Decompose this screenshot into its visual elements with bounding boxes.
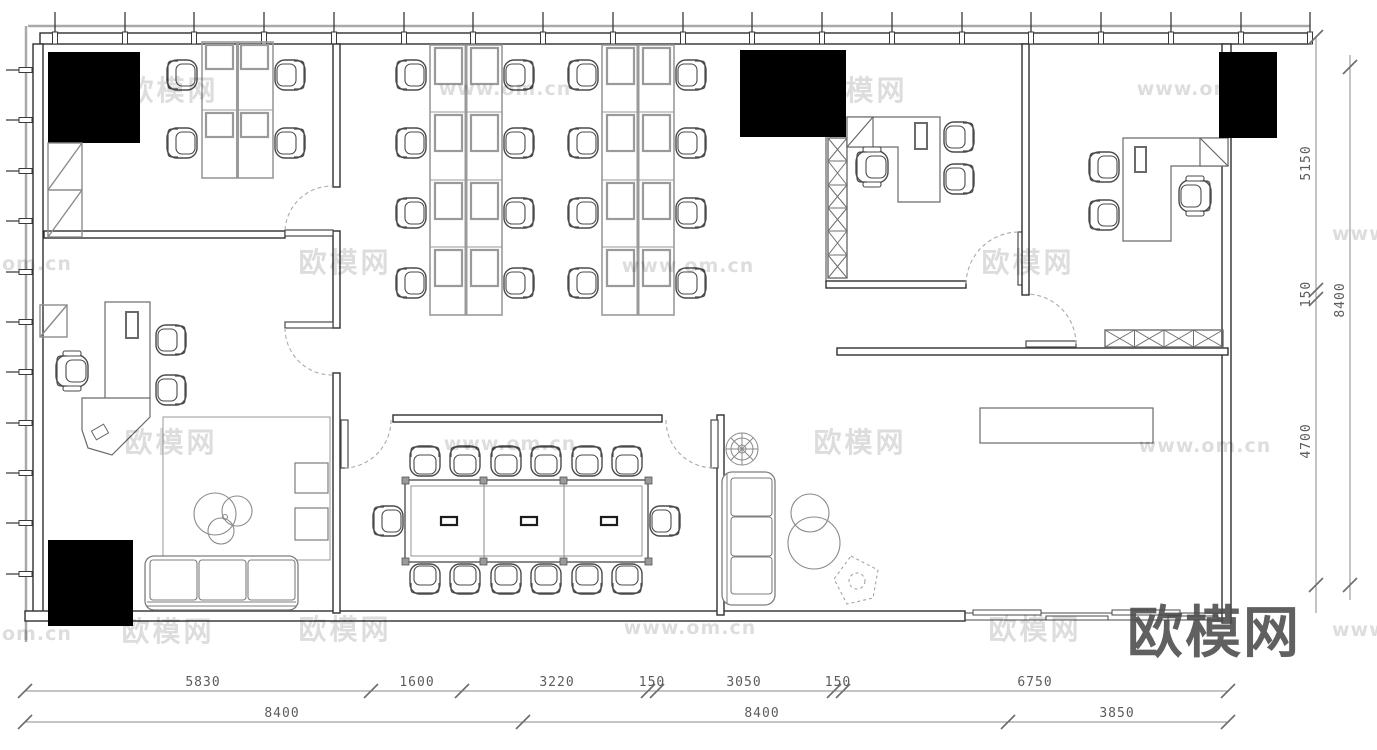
office2-door-leaf <box>285 322 333 328</box>
chair <box>568 268 598 298</box>
chair <box>373 506 403 536</box>
lobby-counter-wall <box>837 348 1228 355</box>
watermark-brand: 欧模网 <box>813 426 906 459</box>
chair <box>167 128 197 158</box>
chair <box>396 128 426 158</box>
chair <box>676 198 706 228</box>
watermark-brand: 欧模网 <box>298 613 391 646</box>
floor-plan-canvas: 5830 1600 3220 150 3050 150 6750 8400 84… <box>0 0 1377 750</box>
office3-bottom-wall <box>826 281 966 288</box>
coffee-table-plant <box>194 493 252 544</box>
dim-label: 3050 <box>726 675 761 690</box>
office3-tall-cabinet <box>828 138 847 278</box>
chair <box>504 198 534 228</box>
monitor-icon <box>241 45 268 69</box>
watermark-brand: 欧模网 <box>124 426 217 459</box>
office-bottom-left <box>40 302 340 626</box>
conference-table <box>402 477 652 565</box>
guest-chair <box>1089 200 1119 230</box>
chair <box>612 564 642 594</box>
monitor-icon <box>206 45 233 69</box>
office1-cabinet <box>48 143 82 237</box>
dim-label: 8400 <box>744 706 779 721</box>
watermark-site-partial: om.cn <box>2 253 72 275</box>
chair <box>396 268 426 298</box>
lobby-sofa <box>722 472 775 605</box>
chair <box>504 268 534 298</box>
watermark-site: www.om.cn <box>1139 435 1272 457</box>
guest-chair <box>156 325 186 355</box>
chair <box>676 60 706 90</box>
chair <box>572 446 602 476</box>
conference-top-wall <box>393 415 662 422</box>
chair <box>568 198 598 228</box>
decor-plant-dashed <box>834 556 878 604</box>
round-table-large <box>788 517 840 569</box>
guest-chair <box>944 164 974 194</box>
dim-label: 3220 <box>539 675 574 690</box>
chair <box>676 128 706 158</box>
monitor-icon <box>471 115 498 151</box>
dim-label: 150 <box>639 675 665 690</box>
guest-chair <box>156 375 186 405</box>
watermark-site: www.om.cn <box>444 433 577 455</box>
dim-label: 150 <box>825 675 851 690</box>
office1-workstation-cluster <box>202 42 273 178</box>
chair <box>410 446 440 476</box>
site-logo: 欧模网 <box>1127 601 1301 666</box>
watermark-brand: 欧模网 <box>814 74 907 107</box>
chair <box>396 198 426 228</box>
office1-right-wall-upper <box>333 44 340 187</box>
executive-chair <box>856 147 888 187</box>
office4-door-arc <box>1026 294 1076 344</box>
chair <box>491 564 521 594</box>
watermark-site: www.om.cn <box>439 78 572 100</box>
watermark-site-partial: www.o <box>1332 619 1377 641</box>
dimension-bottom: 5830 1600 3220 150 3050 150 6750 8400 84… <box>18 675 1235 729</box>
floor-plan-drawing: 5830 1600 3220 150 3050 150 6750 8400 84… <box>0 0 1377 750</box>
dim-label: 6750 <box>1017 675 1052 690</box>
conference-left-door-arc <box>345 420 391 468</box>
chair <box>568 128 598 158</box>
office2-sofa <box>145 556 298 610</box>
redaction-box-4 <box>48 540 133 626</box>
monitor-icon <box>435 115 462 151</box>
chair <box>410 564 440 594</box>
chair <box>450 564 480 594</box>
office4-door-leaf <box>1026 341 1076 347</box>
dim-label: 8400 <box>1333 282 1348 317</box>
monitor-icon <box>471 250 498 286</box>
monitor-icon <box>607 115 634 151</box>
round-table-small <box>791 494 829 532</box>
conference-left-door-leaf <box>341 420 348 468</box>
chair <box>275 128 305 158</box>
watermark-site-partial: om.cn <box>2 623 72 645</box>
watermark-site: www.om.cn <box>622 255 755 277</box>
lobby-area <box>722 408 1153 605</box>
guest-chair <box>944 122 974 152</box>
left-wall <box>33 44 43 613</box>
conference-right-door-arc <box>666 420 714 468</box>
office4-low-cabinet <box>1105 330 1223 347</box>
dim-label: 4700 <box>1299 423 1314 458</box>
dim-label: 3850 <box>1099 706 1134 721</box>
office2-right-wall <box>333 373 340 613</box>
side-table <box>295 508 328 540</box>
office2-door-arc <box>285 328 333 375</box>
dim-label: 1600 <box>399 675 434 690</box>
monitor-icon <box>206 113 233 137</box>
watermark-brand: 欧模网 <box>125 74 218 107</box>
chair <box>568 60 598 90</box>
chair <box>396 60 426 90</box>
watermark-site-partial: www.o <box>1332 223 1377 245</box>
dimension-right: 5150 150 4700 8400 <box>1299 30 1357 613</box>
monitor-icon <box>435 183 462 219</box>
chair <box>650 506 680 536</box>
watermark-brand: 欧模网 <box>298 246 391 279</box>
conference-right-door-leaf <box>711 420 718 468</box>
watermark-site: www.om.cn <box>624 617 757 639</box>
chair <box>572 564 602 594</box>
monitor-icon <box>1135 147 1146 172</box>
dim-label: 5150 <box>1299 145 1314 180</box>
office1-door-arc <box>285 186 333 230</box>
monitor-icon <box>471 183 498 219</box>
monitor-icon <box>241 113 268 137</box>
monitor-icon <box>643 115 670 151</box>
monitor-icon <box>435 250 462 286</box>
dim-label: 150 <box>1299 281 1314 307</box>
monitor-icon <box>607 183 634 219</box>
office2-corner-cabinet <box>40 305 67 337</box>
side-table <box>295 463 328 493</box>
watermark-brand: 欧模网 <box>988 613 1081 646</box>
chair <box>612 446 642 476</box>
executive-chair <box>56 351 88 391</box>
monitor-icon <box>126 312 138 338</box>
guest-chair <box>1089 152 1119 182</box>
executive-chair <box>1179 176 1211 216</box>
watermark-brand: 欧模网 <box>121 615 214 648</box>
monitor-icon <box>915 123 927 149</box>
left-mullion-ticks <box>6 68 32 577</box>
dim-label: 5830 <box>185 675 220 690</box>
watermark-brand: 欧模网 <box>981 246 1074 279</box>
chair <box>504 128 534 158</box>
monitor-icon <box>643 183 670 219</box>
watermark-site: www.om.cn <box>1137 78 1270 100</box>
dim-label: 8400 <box>264 706 299 721</box>
reception-desk <box>980 408 1153 443</box>
monitor-icon <box>643 48 670 84</box>
chair <box>531 564 561 594</box>
office4-desk <box>1123 138 1228 241</box>
fan-decor <box>726 433 758 465</box>
office1-door-leaf <box>285 230 333 236</box>
monitor-icon <box>607 48 634 84</box>
chair <box>275 60 305 90</box>
